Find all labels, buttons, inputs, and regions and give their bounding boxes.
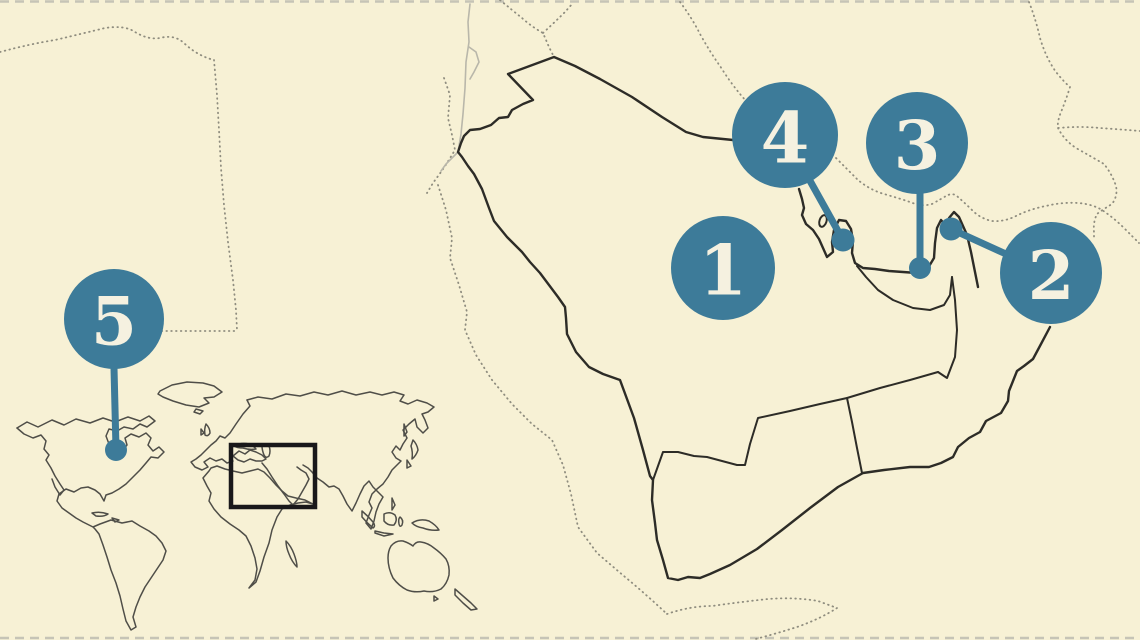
- marker-anchor-dot: [940, 218, 963, 241]
- saudi-yemen-border: [653, 372, 938, 480]
- map-marker-5: 5: [64, 269, 164, 461]
- map-marker-3: 3: [866, 92, 968, 279]
- british-isles-outline: [201, 424, 210, 436]
- egypt-libya-border-dotted: [214, 60, 237, 330]
- iraq-iran-border-dotted: [680, 2, 746, 101]
- philippines-outline: [392, 498, 395, 510]
- marker-number: 5: [91, 283, 137, 361]
- sinai-coast-dotted: [427, 78, 455, 193]
- new-zealand-outline: [455, 589, 477, 610]
- dead-sea-line: [469, 47, 479, 79]
- tasmania-outline: [434, 596, 438, 601]
- marker-anchor-dot: [105, 439, 127, 461]
- arabian-peninsula-inset-outline: [262, 463, 317, 505]
- horn-of-africa-dotted: [667, 598, 837, 640]
- australia-outline: [388, 541, 449, 592]
- africa-outline: [203, 466, 313, 588]
- markers-layer: 12345: [64, 82, 1102, 461]
- map-marker-1: 1: [671, 216, 775, 320]
- map-neatlines: [0, 2, 1140, 639]
- iceland-outline: [194, 409, 203, 414]
- north-america-west-coast: [17, 428, 64, 495]
- marker-anchor-dot: [832, 229, 855, 252]
- sulawesi-outline: [399, 517, 403, 526]
- jordan-valley-line: [458, 4, 470, 152]
- yemen-oman-border: [847, 398, 862, 473]
- map-marker-2: 2: [940, 218, 1103, 325]
- marker-leader-line: [114, 368, 116, 449]
- oman-west-border: [938, 277, 957, 378]
- neighbor-borders-dotted: [0, 0, 1140, 640]
- aqaba-gulf-line: [441, 152, 458, 171]
- madagascar-outline: [286, 541, 297, 567]
- north-south-america-outline: [17, 416, 166, 630]
- borneo-outline: [384, 513, 396, 525]
- anatolia-outline: [233, 450, 266, 462]
- marker-number: 1: [699, 230, 747, 311]
- marker-number: 4: [761, 96, 810, 179]
- new-guinea-outline: [412, 520, 439, 530]
- region-highlight-rect: [231, 445, 315, 507]
- japan-outline: [407, 440, 418, 468]
- marker-anchor-dot: [909, 257, 931, 279]
- cuba-outline: [92, 512, 108, 516]
- african-red-sea-coast-dotted: [438, 185, 667, 614]
- world-inset-map: [17, 382, 477, 630]
- iran-east-borders-dotted: [1029, 2, 1140, 240]
- quiz-map-canvas: 12345: [0, 0, 1140, 640]
- levant-borders-dotted: [500, 0, 573, 57]
- java-outline: [375, 531, 393, 536]
- marker-number: 3: [894, 106, 941, 185]
- greenland-outline: [158, 382, 222, 407]
- mediterranean-coast-dotted: [0, 27, 214, 60]
- marker-number: 2: [1028, 236, 1075, 315]
